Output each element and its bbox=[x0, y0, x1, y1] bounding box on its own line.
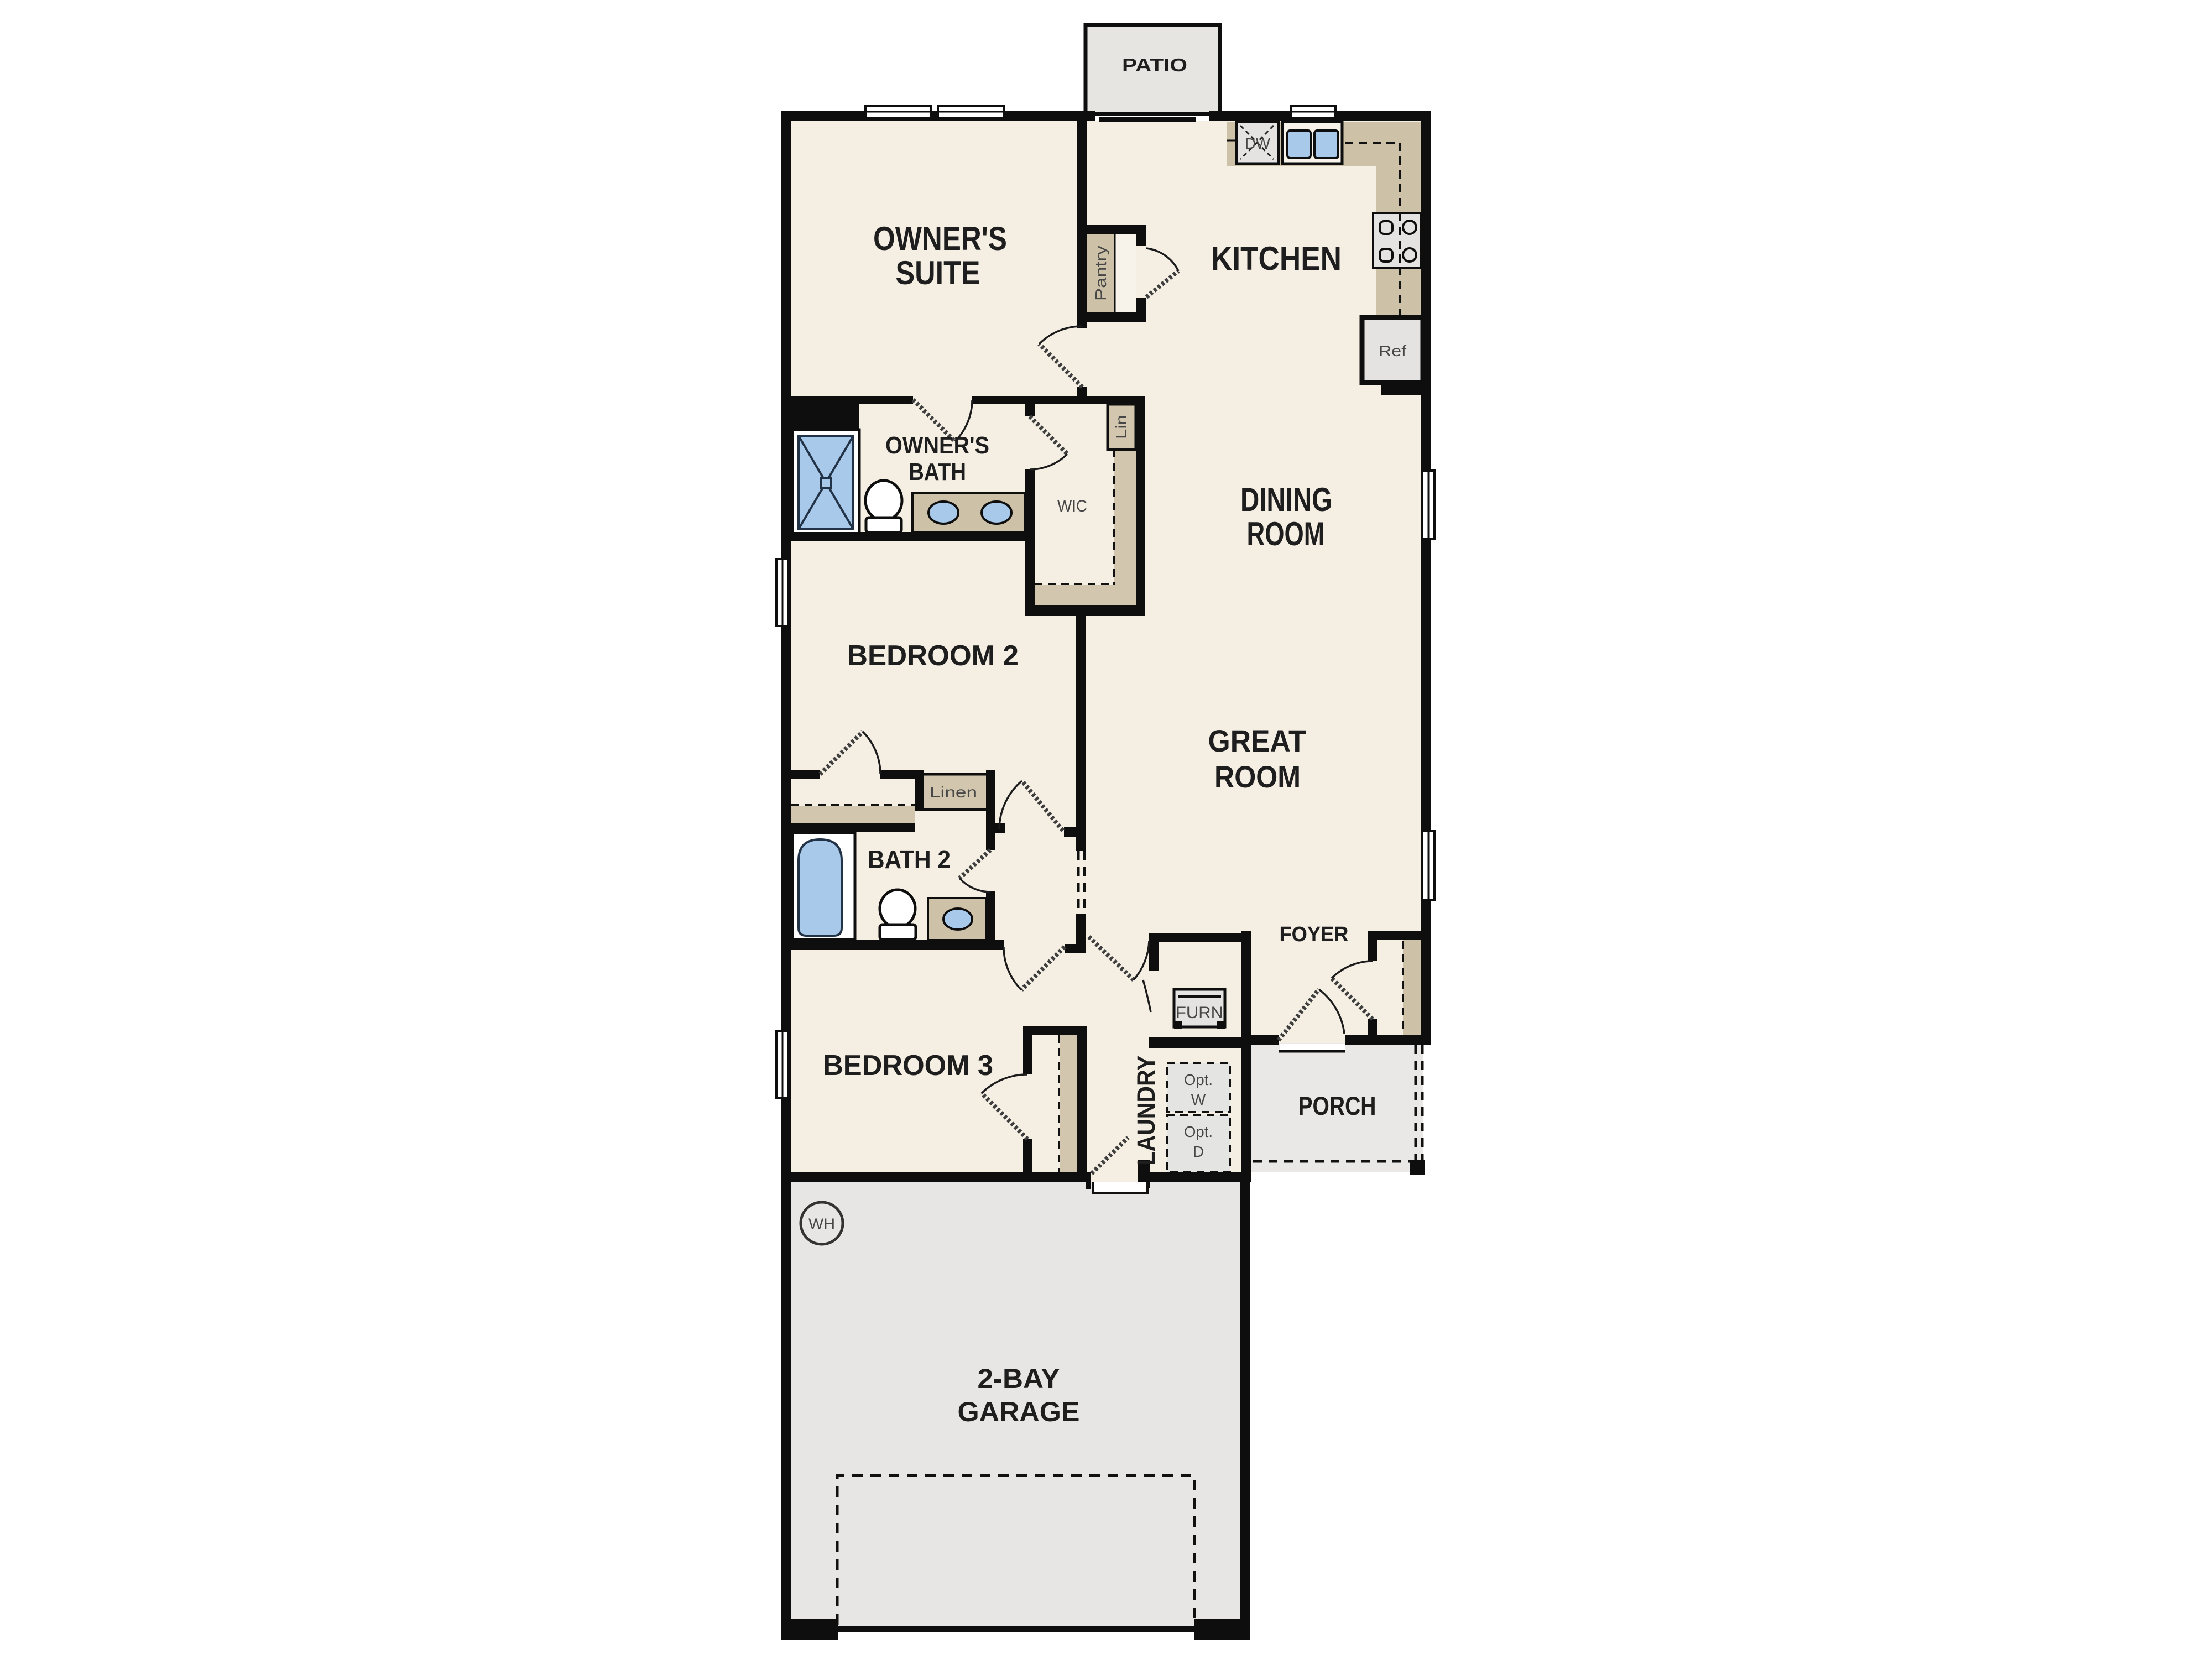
svg-text:OWNER'S: OWNER'S bbox=[885, 432, 989, 459]
svg-text:OWNER'S: OWNER'S bbox=[873, 220, 1007, 257]
svg-text:D: D bbox=[1193, 1143, 1204, 1160]
svg-text:BATH 2: BATH 2 bbox=[868, 845, 951, 874]
svg-text:Opt.: Opt. bbox=[1184, 1071, 1213, 1088]
svg-text:PATIO: PATIO bbox=[1122, 55, 1187, 75]
svg-text:GREAT: GREAT bbox=[1208, 723, 1306, 758]
svg-text:LAUNDRY: LAUNDRY bbox=[1132, 1056, 1160, 1166]
svg-text:BEDROOM 3: BEDROOM 3 bbox=[823, 1050, 993, 1082]
svg-text:WIC: WIC bbox=[1057, 497, 1087, 515]
svg-text:ROOM: ROOM bbox=[1214, 759, 1301, 794]
svg-text:WH: WH bbox=[808, 1215, 835, 1232]
svg-text:FURN: FURN bbox=[1176, 1004, 1223, 1022]
svg-text:DINING: DINING bbox=[1240, 481, 1332, 518]
svg-text:PORCH: PORCH bbox=[1298, 1091, 1376, 1120]
svg-text:GARAGE: GARAGE bbox=[958, 1396, 1080, 1427]
svg-text:Linen: Linen bbox=[930, 784, 977, 801]
svg-text:BEDROOM 2: BEDROOM 2 bbox=[847, 640, 1019, 672]
svg-text:BATH: BATH bbox=[909, 458, 966, 486]
svg-text:KITCHEN: KITCHEN bbox=[1211, 240, 1342, 277]
svg-text:SUITE: SUITE bbox=[896, 254, 980, 291]
svg-text:DW: DW bbox=[1245, 135, 1271, 152]
svg-text:Lin: Lin bbox=[1113, 415, 1130, 439]
svg-text:ROOM: ROOM bbox=[1247, 515, 1325, 552]
svg-text:FOYER: FOYER bbox=[1280, 923, 1349, 946]
svg-text:2-BAY: 2-BAY bbox=[978, 1363, 1060, 1394]
svg-text:Pantry: Pantry bbox=[1092, 246, 1109, 301]
svg-text:Opt.: Opt. bbox=[1184, 1123, 1213, 1140]
svg-text:Ref: Ref bbox=[1379, 342, 1406, 359]
svg-text:W: W bbox=[1191, 1091, 1206, 1108]
